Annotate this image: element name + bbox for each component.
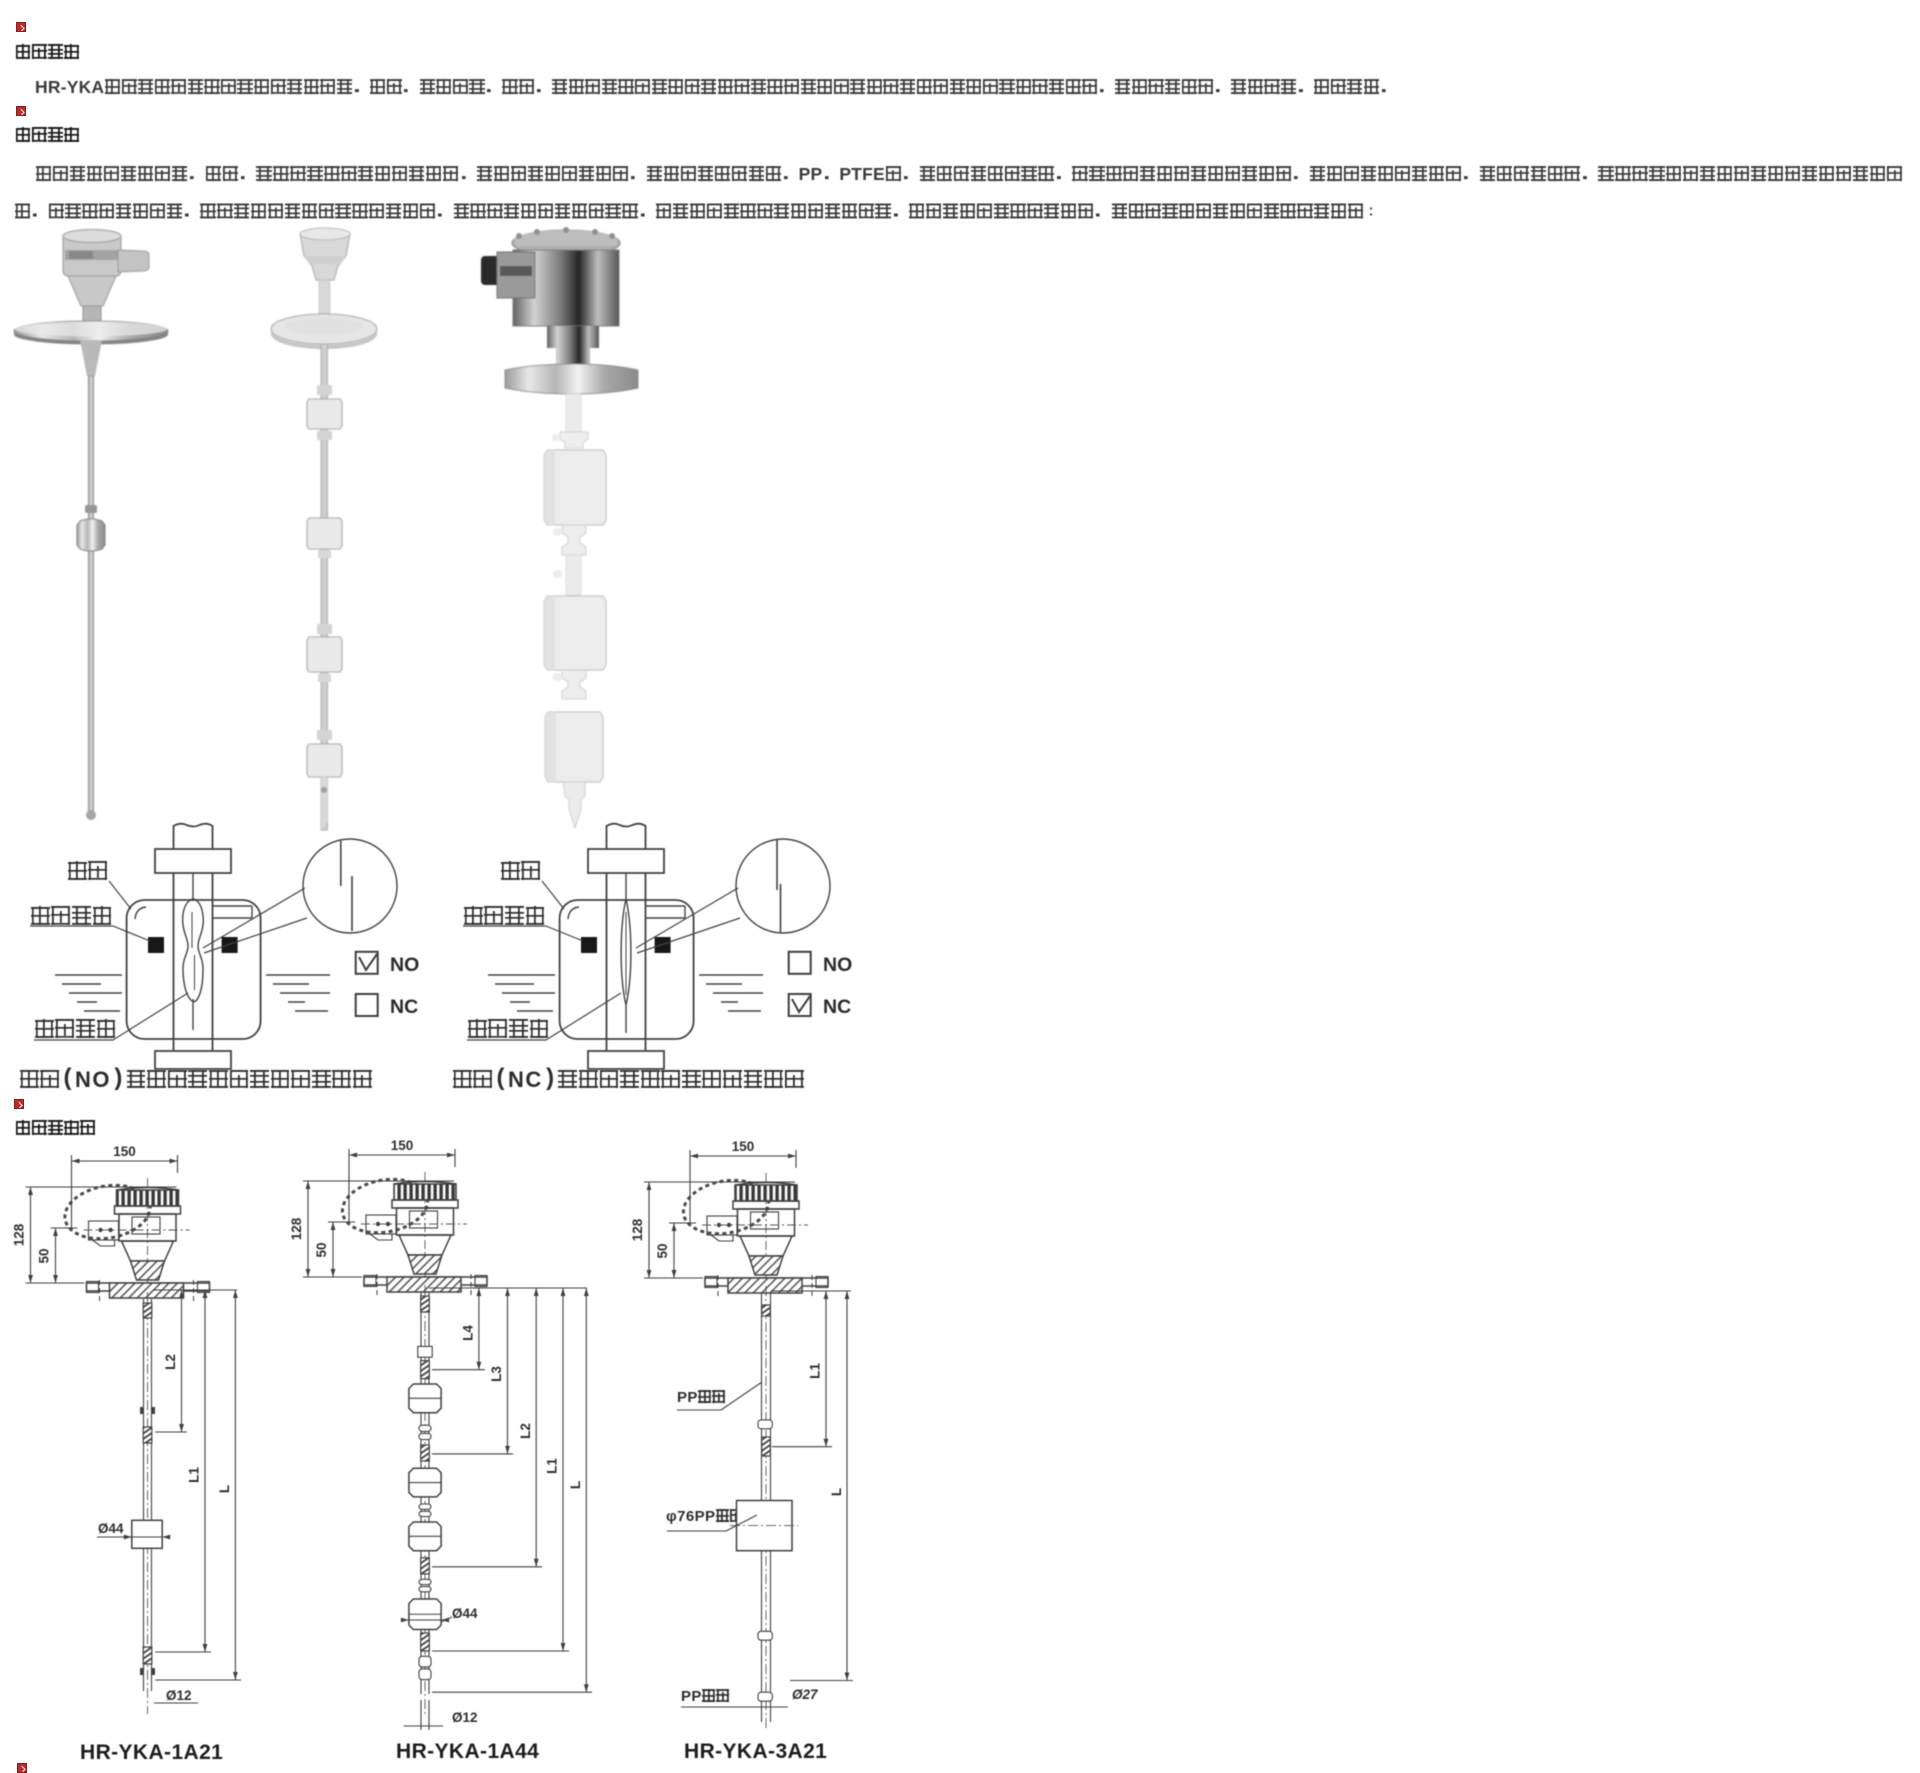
svg-text:L1: L1 xyxy=(808,1363,823,1379)
svg-text:L1: L1 xyxy=(187,1467,202,1483)
svg-text:L3: L3 xyxy=(489,1366,504,1382)
svg-text:50: 50 xyxy=(314,1242,329,1257)
svg-text:L1: L1 xyxy=(545,1458,560,1474)
svg-text:L2: L2 xyxy=(163,1354,178,1370)
svg-text:150: 150 xyxy=(391,1140,414,1153)
svg-text:Ø12: Ø12 xyxy=(452,1710,478,1725)
svg-text:150: 150 xyxy=(113,1144,136,1159)
svg-text:128: 128 xyxy=(630,1218,645,1241)
svg-text:50: 50 xyxy=(37,1248,52,1263)
svg-text:L2: L2 xyxy=(518,1423,533,1439)
svg-text:L: L xyxy=(568,1481,583,1489)
svg-text:L: L xyxy=(217,1485,232,1493)
svg-text:50: 50 xyxy=(655,1243,670,1258)
svg-text:128: 128 xyxy=(12,1223,27,1246)
svg-text:Ø44: Ø44 xyxy=(452,1606,478,1621)
svg-text:150: 150 xyxy=(732,1140,755,1154)
svg-text:Ø27: Ø27 xyxy=(792,1687,819,1702)
svg-text:128: 128 xyxy=(289,1217,304,1240)
svg-text:L: L xyxy=(829,1488,844,1496)
svg-text:Ø12: Ø12 xyxy=(166,1688,192,1703)
svg-text:L4: L4 xyxy=(461,1325,476,1341)
svg-text:Ø44: Ø44 xyxy=(98,1521,124,1536)
